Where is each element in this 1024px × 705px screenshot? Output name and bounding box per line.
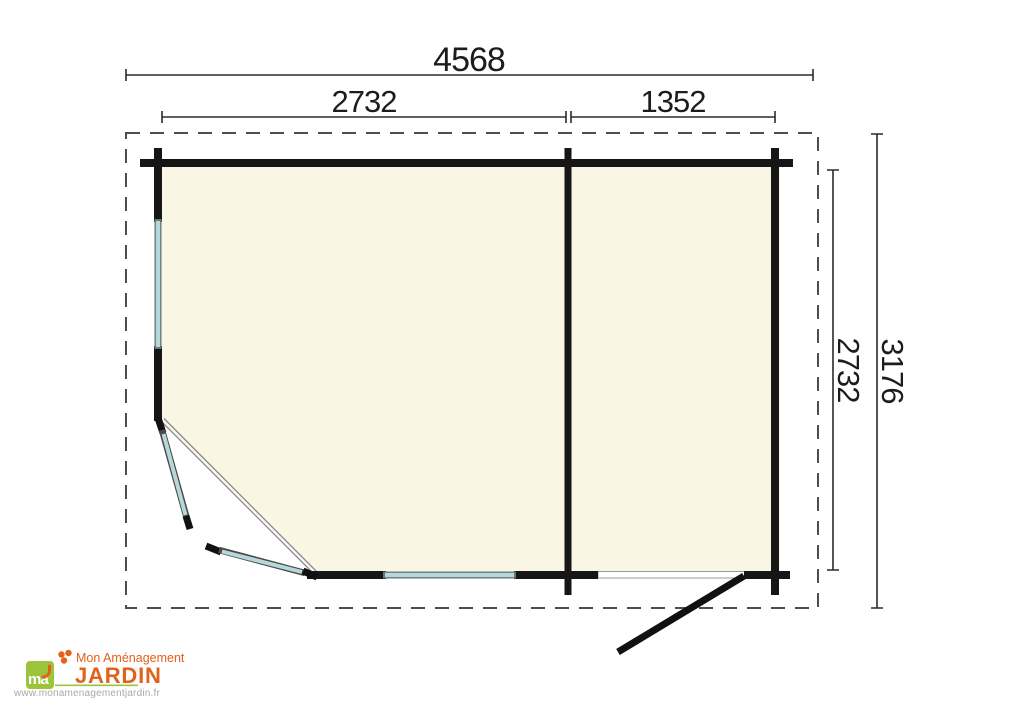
door-leaf1-glass: [164, 434, 186, 515]
side-door-leaf: [618, 576, 744, 652]
dimension-label-width-left-room: 2732: [332, 84, 397, 119]
door-leaf2-glass: [222, 552, 302, 573]
floor-plan-page: 4568 2732 1352 3176 2732 ma Mon Aménagem…: [0, 0, 1024, 705]
clover-icon: [58, 650, 71, 664]
dimension-label-width-total: 4568: [433, 41, 505, 79]
dimension-label-width-right-room: 1352: [641, 84, 706, 119]
door-leaf1-edge: [186, 516, 190, 529]
dimension-label-depth-inner: 2732: [831, 338, 866, 403]
dimension-label-depth-total: 3176: [875, 339, 910, 404]
floor-plan-svg: 4568 2732 1352 3176 2732 ma Mon Aménagem…: [0, 0, 1024, 705]
floor-area: [158, 163, 780, 575]
logo-website-url: www.monamenagementjardin.fr: [13, 688, 160, 699]
logo-name-line2: JARDIN: [75, 663, 162, 688]
clover-leaf: [58, 651, 64, 657]
clover-leaf: [65, 650, 71, 656]
logo: ma Mon Aménagement JARDIN www.monamenage…: [13, 650, 185, 699]
side-door-threshold: [598, 572, 745, 579]
clover-leaf: [61, 657, 67, 663]
logo-mark-text: ma: [28, 671, 49, 688]
